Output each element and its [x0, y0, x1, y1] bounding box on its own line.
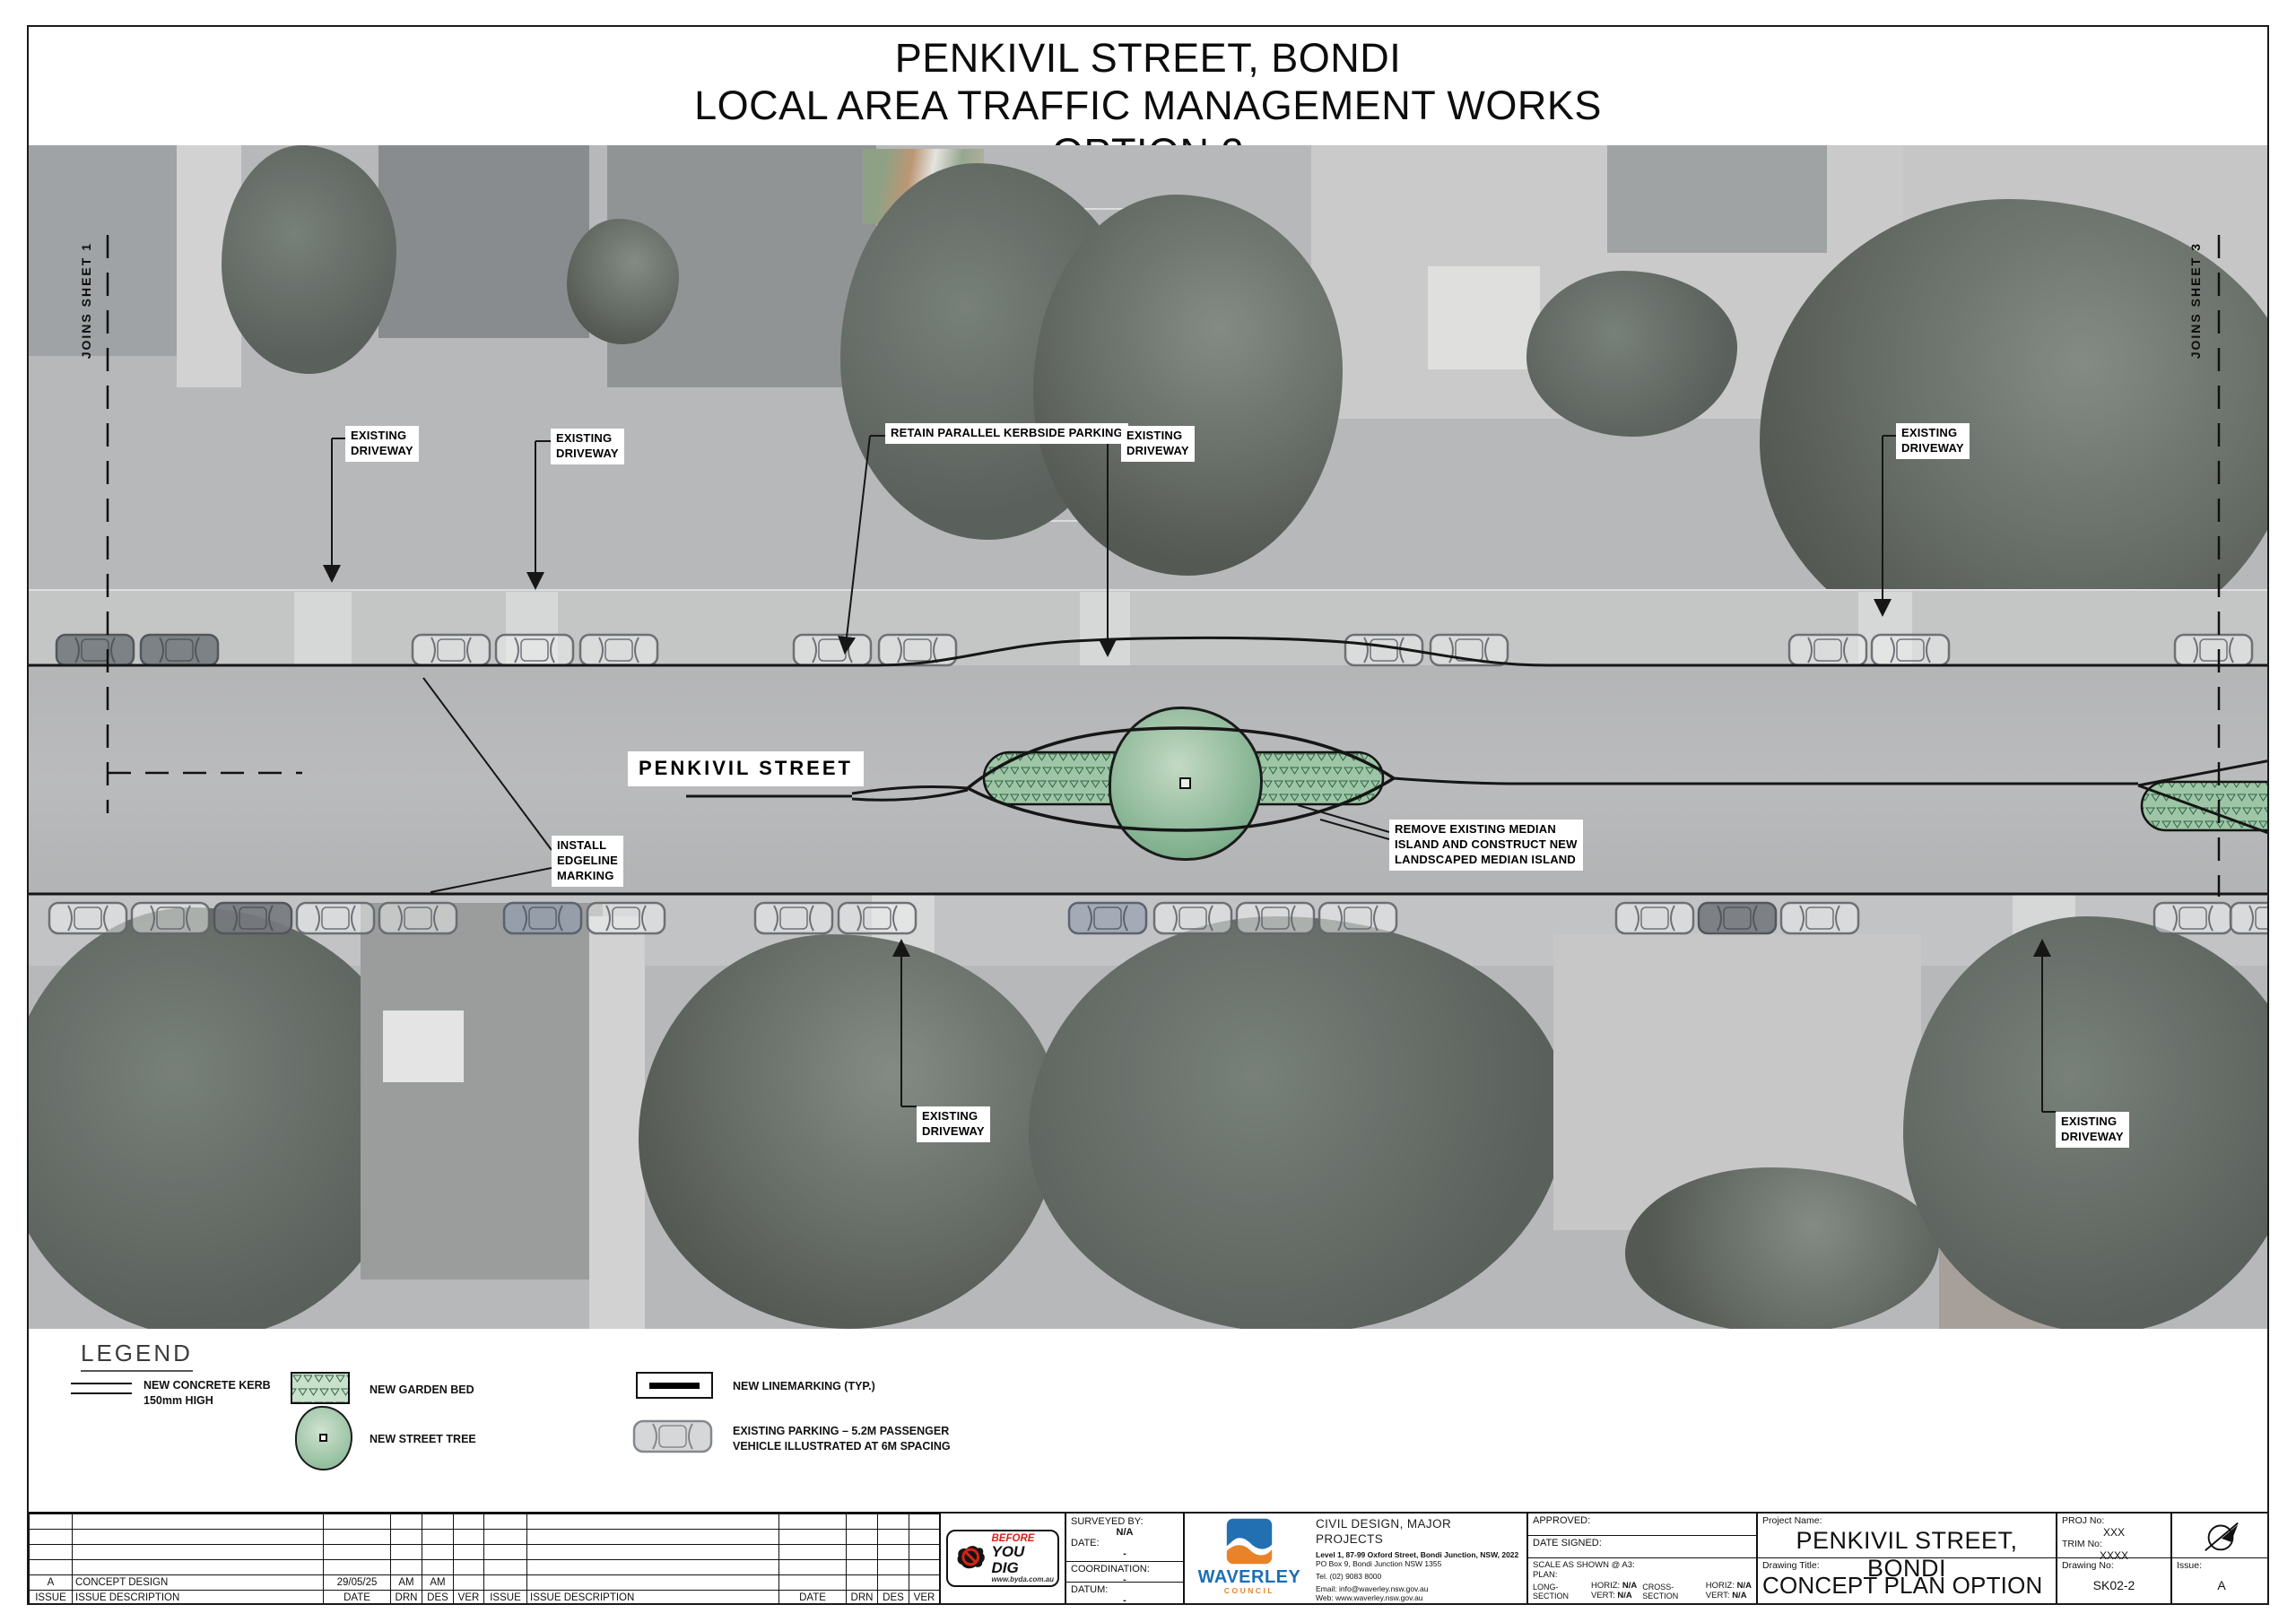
issue-row-empty	[30, 1514, 940, 1530]
long-section-label: LONG-SECTION	[1533, 1583, 1586, 1600]
issue-cell: AM	[391, 1575, 422, 1591]
issue-value: A	[2177, 1578, 2266, 1592]
issue-row-empty	[30, 1530, 940, 1545]
drawing-sheet: PENKIVIL STREET, BONDI LOCAL AREA TRAFFI…	[27, 25, 2269, 1605]
issue-header: ISSUE DESCRIPTION	[73, 1591, 324, 1606]
callout-install-edgeline: INSTALL EDGELINE MARKING	[552, 836, 623, 887]
issue-cell: 29/05/25	[324, 1575, 391, 1591]
issue-label: Issue:	[2177, 1560, 2266, 1571]
trim-no-label: TRIM No:	[2062, 1539, 2166, 1549]
byd-url-label: www.byda.com.au	[992, 1576, 1055, 1583]
horiz-label: HORIZ:	[1591, 1581, 1620, 1591]
issue-cell-empty	[30, 1514, 73, 1530]
council-address-2: PO Box 9, Bondi Junction NSW 1355	[1316, 1559, 1521, 1569]
waverley-sub: COUNCIL	[1190, 1586, 1309, 1595]
council-email: Email: info@waverley.nsw.gov.au	[1316, 1584, 1521, 1594]
issue-header: VER	[909, 1591, 940, 1606]
council-cell: WAVERLEY COUNCIL CIVIL DESIGN, MAJOR PRO…	[1183, 1514, 1526, 1603]
datum-value: -	[1071, 1595, 1178, 1605]
callout-existing-driveway: EXISTING DRIVEWAY	[345, 426, 419, 462]
north-issue-cell: Issue: A	[2170, 1514, 2269, 1603]
before-you-dig-cell: BEFORE YOU DIG www.byda.com.au	[939, 1514, 1065, 1603]
callout-existing-driveway: EXISTING DRIVEWAY	[1896, 423, 1970, 459]
callout-existing-driveway: EXISTING DRIVEWAY	[917, 1106, 990, 1142]
legend-garden-bed-label: NEW GARDEN BED	[370, 1383, 474, 1398]
vert-label: VERT:	[1591, 1591, 1615, 1600]
kerb-lines	[29, 638, 2269, 894]
cross-section-label: CROSS-SECTION	[1642, 1583, 1700, 1600]
coordination-label: COORDINATION:	[1071, 1564, 1178, 1574]
waverley-waves-icon	[1225, 1517, 1274, 1566]
project-cell: Project Name: PENKIVIL STREET, BONDI Dra…	[1756, 1514, 2056, 1603]
title-line-2: LOCAL AREA TRAFFIC MANAGEMENT WORKS	[29, 82, 2267, 129]
linemarking-symbol	[636, 1372, 713, 1399]
long-horiz-value: N/A	[1622, 1581, 1637, 1591]
vert-label: VERT:	[1706, 1591, 1730, 1600]
issue-header-row: ISSUE ISSUE DESCRIPTION DATE DRN DES VER…	[30, 1591, 940, 1606]
legend-kerb-label: NEW CONCRETE KERB 150mm HIGH	[143, 1378, 271, 1409]
issue-header: ISSUE	[30, 1591, 73, 1606]
concrete-kerb-symbol	[71, 1383, 132, 1402]
joins-sheet-right-label: JOINS SHEET 3	[2188, 242, 2203, 359]
project-name-label: Project Name:	[1762, 1515, 2051, 1526]
byd-australia-icon	[952, 1535, 990, 1582]
median-island-outline	[686, 728, 2269, 834]
scale-plan-label: PLAN:	[1533, 1570, 1752, 1580]
council-web: Web: www.waverley.nsw.gov.au	[1316, 1593, 1521, 1603]
cross-horiz-value: N/A	[1737, 1581, 1752, 1591]
title-line-1: PENKIVIL STREET, BONDI	[29, 34, 2267, 82]
issue-header: DES	[422, 1591, 454, 1606]
street-tree-symbol	[295, 1406, 352, 1470]
waverley-name: WAVERLEY	[1190, 1568, 1309, 1586]
issue-row-a: A CONCEPT DESIGN 29/05/25 AM AM	[30, 1575, 940, 1591]
street-name-label: PENKIVIL STREET	[628, 751, 864, 786]
issue-header: VER	[454, 1591, 484, 1606]
issue-header: DATE	[324, 1591, 391, 1606]
legend-section: LEGEND NEW CONCRETE KERB 150mm HIGH NEW …	[29, 1329, 2269, 1514]
survey-date-label: DATE:	[1071, 1538, 1178, 1548]
legend-parking-label: EXISTING PARKING – 5.2M PASSENGER VEHICL…	[733, 1424, 951, 1454]
issue-header: DATE	[779, 1591, 847, 1606]
issue-table: A CONCEPT DESIGN 29/05/25 AM AM ISSUE IS…	[29, 1514, 940, 1605]
issue-row-empty	[30, 1560, 940, 1575]
cross-vert-value: N/A	[1732, 1591, 1746, 1600]
tree-trunk-marker	[319, 1434, 327, 1442]
joins-sheet-left-label: JOINS SHEET 1	[79, 242, 93, 359]
proj-no-value: XXX	[2062, 1526, 2166, 1539]
council-department: CIVIL DESIGN, MAJOR PROJECTS	[1316, 1517, 1521, 1548]
issue-header: DRN	[391, 1591, 422, 1606]
match-lines	[108, 235, 2219, 897]
issue-header: ISSUE DESCRIPTION	[527, 1591, 779, 1606]
issue-header: DRN	[847, 1591, 878, 1606]
numbers-cell: PROJ No: XXX TRIM No: XXXX Drawing No: S…	[2056, 1514, 2170, 1603]
title-block: A CONCEPT DESIGN 29/05/25 AM AM ISSUE IS…	[29, 1512, 2269, 1603]
drawing-no-value: SK02-2	[2062, 1578, 2166, 1592]
issue-cell: CONCEPT DESIGN	[73, 1575, 324, 1591]
approval-cell: APPROVED: DATE SIGNED: SCALE AS SHOWN @ …	[1526, 1514, 1756, 1603]
surveyed-by-value: N/A	[1071, 1527, 1178, 1538]
issue-header: DES	[878, 1591, 909, 1606]
survey-info-cell: SURVEYED BY: N/A DATE: - COORDINATION: -…	[1065, 1514, 1183, 1603]
legend-street-tree-label: NEW STREET TREE	[370, 1432, 476, 1447]
legend-title: LEGEND	[81, 1340, 193, 1372]
date-signed-label: DATE SIGNED:	[1528, 1536, 1756, 1558]
legend-linemarking-label: NEW LINEMARKING (TYP.)	[733, 1379, 875, 1394]
issue-cell: A	[30, 1575, 73, 1591]
parked-cars-south	[49, 903, 2269, 933]
plan-linework-svg	[29, 145, 2269, 1329]
plan-view: JOINS SHEET 1 JOINS SHEET 3 EXISTING DRI…	[29, 145, 2269, 1329]
callout-existing-driveway: EXISTING DRIVEWAY	[1121, 426, 1195, 462]
parking-car-symbol	[631, 1418, 714, 1454]
callout-existing-driveway: EXISTING DRIVEWAY	[551, 429, 624, 464]
callout-remove-median: REMOVE EXISTING MEDIAN ISLAND AND CONSTR…	[1389, 820, 1583, 871]
horiz-label: HORIZ:	[1706, 1581, 1735, 1591]
council-tel: Tel. (02) 9083 8000	[1316, 1572, 1521, 1582]
drawing-title: CONCEPT PLAN OPTION 2 - SHEET 2	[1762, 1572, 2051, 1605]
datum-label: DATUM:	[1071, 1584, 1178, 1595]
issue-header: ISSUE	[484, 1591, 527, 1606]
callout-retain-parking: RETAIN PARALLEL KERBSIDE PARKING	[885, 423, 1128, 444]
before-you-dig-logo: BEFORE YOU DIG www.byda.com.au	[946, 1530, 1059, 1587]
callout-existing-driveway: EXISTING DRIVEWAY	[2056, 1112, 2129, 1148]
long-vert-value: N/A	[1617, 1591, 1631, 1600]
council-address-1: Level 1, 87-99 Oxford Street, Bondi Junc…	[1316, 1550, 1521, 1560]
proj-no-label: PROJ No:	[2062, 1515, 2166, 1526]
issue-cell	[454, 1575, 484, 1591]
issue-cell: AM	[422, 1575, 454, 1591]
survey-date-value: -	[1071, 1548, 1178, 1559]
approved-label: APPROVED:	[1528, 1514, 1756, 1536]
garden-bed-symbol	[291, 1372, 350, 1404]
scale-label: SCALE AS SHOWN @ A3:	[1533, 1560, 1752, 1570]
issue-row-empty	[30, 1545, 940, 1560]
byd-youdig-label: YOU DIG	[992, 1544, 1055, 1576]
leader-lines	[332, 436, 2056, 1112]
waverley-logo: WAVERLEY COUNCIL	[1190, 1517, 1309, 1600]
north-arrow-icon	[2201, 1515, 2242, 1557]
surveyed-by-label: SURVEYED BY:	[1071, 1516, 1178, 1527]
